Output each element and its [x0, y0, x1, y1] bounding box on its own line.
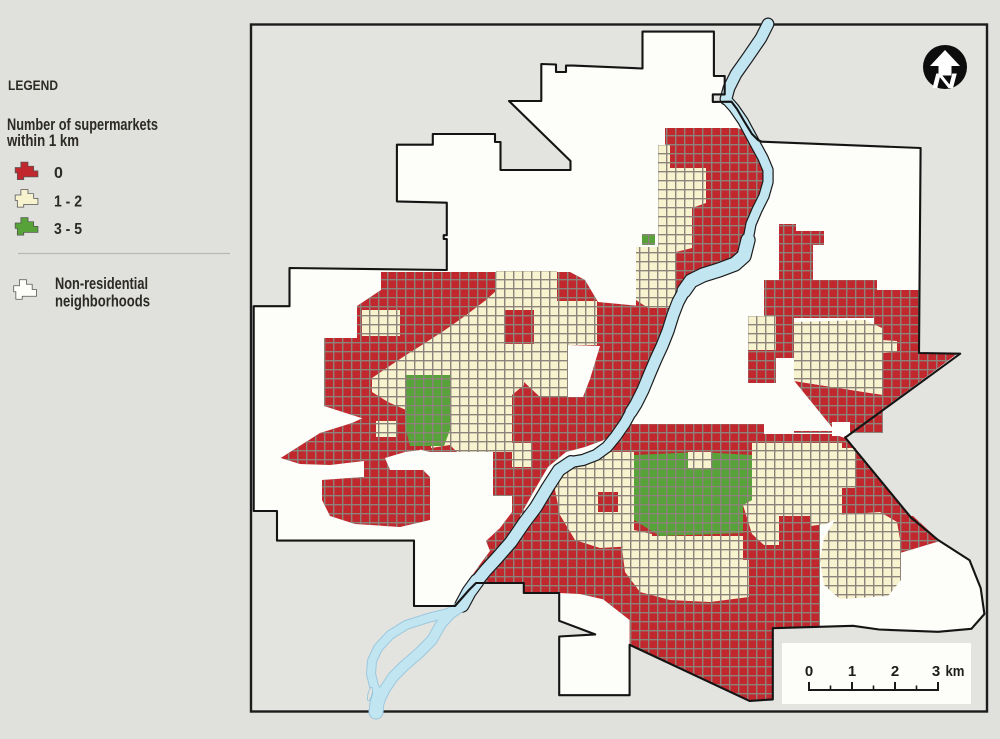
svg-text:within 1 km: within 1 km [6, 132, 79, 150]
svg-text:3 - 5: 3 - 5 [54, 221, 82, 238]
svg-text:km: km [946, 663, 965, 680]
svg-text:0: 0 [54, 165, 63, 182]
svg-text:2: 2 [891, 663, 899, 680]
svg-text:LEGEND: LEGEND [8, 77, 58, 93]
svg-text:Non-residential: Non-residential [55, 275, 148, 293]
svg-text:1: 1 [848, 663, 856, 680]
svg-text:1 - 2: 1 - 2 [54, 194, 82, 211]
svg-text:neighborhoods: neighborhoods [55, 293, 150, 311]
svg-text:3: 3 [932, 663, 940, 680]
svg-text:0: 0 [805, 663, 813, 680]
